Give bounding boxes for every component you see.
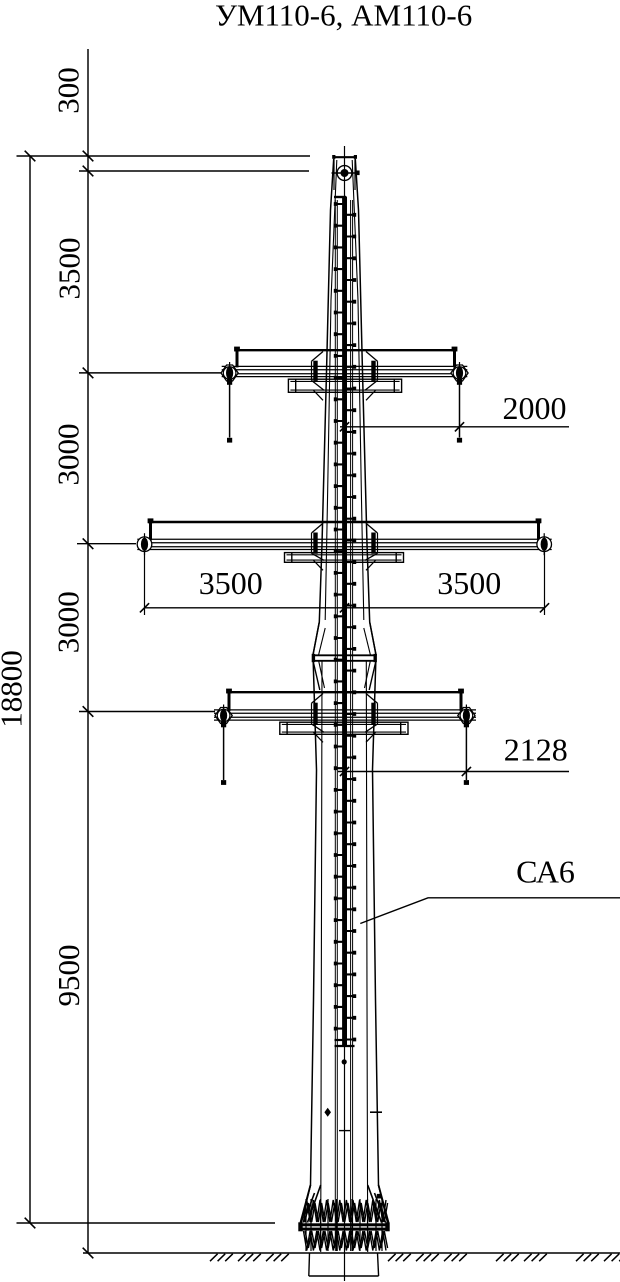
svg-text:3000: 3000	[51, 424, 86, 486]
svg-text:УМ110-6, АМ110-6: УМ110-6, АМ110-6	[215, 0, 472, 33]
svg-text:3500: 3500	[52, 238, 87, 300]
svg-text:2128: 2128	[504, 731, 568, 767]
svg-text:3000: 3000	[50, 591, 85, 653]
svg-text:3500: 3500	[199, 565, 263, 601]
svg-text:9500: 9500	[51, 945, 86, 1007]
svg-text:300: 300	[51, 67, 86, 114]
svg-text:СА6: СА6	[516, 854, 575, 890]
svg-text:18800: 18800	[0, 650, 29, 728]
svg-text:2000: 2000	[503, 390, 567, 426]
svg-text:3500: 3500	[437, 565, 501, 601]
